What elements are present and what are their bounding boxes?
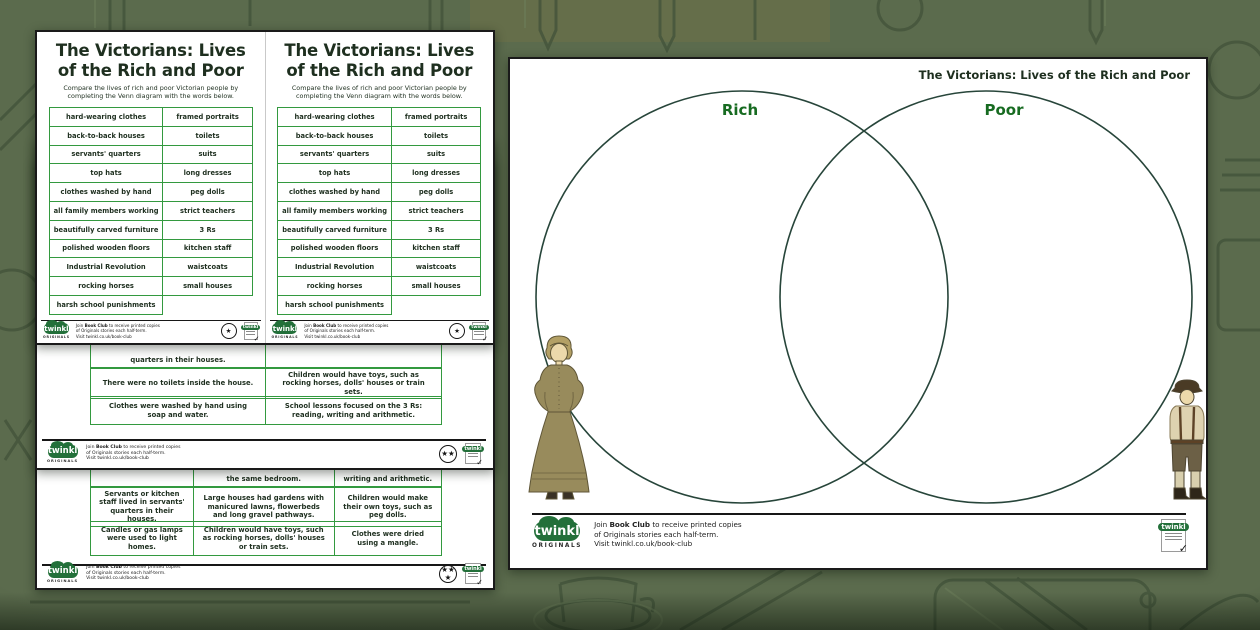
originals-label: ORIGINALS <box>47 459 78 463</box>
facts-cell: There were no toilets inside the house. <box>90 368 266 399</box>
word-bank-cell: harsh school punishments <box>49 295 164 315</box>
word-bank-row: harsh school punishments <box>49 295 253 315</box>
page-instructions: Compare the lives of rich and poor Victo… <box>61 84 241 100</box>
word-bank-cell: rocking horses <box>49 276 164 296</box>
facts-cell: Children would have toys, such as rockin… <box>265 368 442 399</box>
difficulty-two-stars-icon: ★★ <box>439 445 457 463</box>
twinkl-originals-logo: twinkl ORIGINALS <box>47 565 78 583</box>
venn-diagram-page: The Victorians: Lives of the Rich and Po… <box>508 57 1208 570</box>
word-bank-row: rocking horses small houses <box>277 276 481 296</box>
book-club-text: Join Book Club to receive printed copies… <box>86 445 180 462</box>
twinkl-resource-preview: the same bedroom. writing and arithmetic… <box>0 0 1260 630</box>
book-club-line: Visit twinkl.co.uk/book-club <box>304 334 388 339</box>
word-bank-cell: Industrial Revolution <box>277 257 392 277</box>
footer-divider <box>42 439 486 441</box>
book-club-line: Visit twinkl.co.uk/book-club <box>86 576 180 582</box>
word-bank-row: back-to-back houses toilets <box>49 126 253 146</box>
book-club-line: Visit twinkl.co.uk/book-club <box>594 539 742 549</box>
word-bank-row: all family members working strict teache… <box>49 201 253 221</box>
page-footer: twinkl ORIGINALS Join Book Club to recei… <box>272 322 487 340</box>
word-bank-cell: Industrial Revolution <box>49 257 164 277</box>
quality-badge-text-lines <box>468 573 479 578</box>
word-bank-row: Industrial Revolution waistcoats <box>277 257 481 277</box>
book-club-line: of Originals stories each half-term. <box>594 530 742 540</box>
page-footer: twinkl ORIGINALS Join Book Club to recei… <box>47 563 481 584</box>
facts-rows: There were no toilets inside the house. … <box>90 368 442 425</box>
facts-cell: Children would have toys, such as rockin… <box>193 521 335 556</box>
venn-label-rich: Rich <box>714 101 766 119</box>
word-bank-cell: back-to-back houses <box>277 126 392 146</box>
word-bank-cell: waistcoats <box>391 257 481 277</box>
originals-label: ORIGINALS <box>43 335 70 339</box>
quality-badge-icon: twinkl <box>465 563 481 584</box>
twinkl-originals-logo: twinkl ORIGINALS <box>532 519 582 549</box>
word-bank-cell: back-to-back houses <box>49 126 164 146</box>
word-bank-cell: strict teachers <box>162 201 252 221</box>
word-bank-cell: all family members working <box>49 201 164 221</box>
word-bank-cell: toilets <box>391 126 481 146</box>
book-club-line: Join Book Club to receive printed copies <box>86 565 180 571</box>
victorian-boy-illustration <box>1160 378 1215 508</box>
word-bank-page-2: The Victorians: Lives of the Rich and Po… <box>265 32 494 343</box>
facts-cell: School lessons focused on the 3 Rs: read… <box>265 396 442 425</box>
word-bank-pages: The Victorians: Lives of the Rich and Po… <box>35 30 495 345</box>
word-bank-row: top hats long dresses <box>49 163 253 183</box>
twinkl-logo-icon: twinkl <box>272 323 297 334</box>
difficulty-three-stars-icon: ★★★ <box>439 565 457 583</box>
word-bank-cell: small houses <box>162 276 252 296</box>
word-bank-row: beautifully carved furniture 3 Rs <box>49 220 253 240</box>
word-bank-cell <box>162 295 252 315</box>
word-bank-cell: waistcoats <box>162 257 252 277</box>
quality-badge-text-lines <box>468 453 479 458</box>
word-bank-row: rocking horses small houses <box>49 276 253 296</box>
facts-rows: Servants or kitchen staff lived in serva… <box>90 487 442 556</box>
quality-badge-text-lines <box>474 331 483 335</box>
word-bank-cell: hard-wearing clothes <box>49 107 164 127</box>
word-bank-row: all family members working strict teache… <box>277 201 481 221</box>
word-bank-cell: top hats <box>277 163 392 183</box>
footer-divider <box>270 320 490 322</box>
book-club-text: Join Book Club to receive printed copies… <box>76 323 160 338</box>
word-bank-row: clothes washed by hand peg dolls <box>277 182 481 202</box>
book-club-line: Visit twinkl.co.uk/book-club <box>86 456 180 462</box>
word-bank-cell: top hats <box>49 163 164 183</box>
quality-badge-text-lines <box>1165 533 1183 541</box>
word-bank-row: servants' quarters suits <box>49 145 253 165</box>
quality-badge-icon: twinkl <box>1161 519 1186 552</box>
facts-cell: Clothes were dried using a mangle. <box>334 521 442 556</box>
word-bank-cell: clothes washed by hand <box>49 182 164 202</box>
facts-cell: Clothes were washed by hand using soap a… <box>90 396 266 425</box>
word-bank-cell: hard-wearing clothes <box>277 107 392 127</box>
word-bank-row: hard-wearing clothes framed portraits <box>277 107 481 127</box>
word-bank-cell: strict teachers <box>391 201 481 221</box>
word-bank-cell: long dresses <box>162 163 252 183</box>
quality-badge-icon: twinkl <box>465 443 481 464</box>
word-bank-row: hard-wearing clothes framed portraits <box>49 107 253 127</box>
word-bank-row: polished wooden floors kitchen staff <box>277 239 481 259</box>
facts-row: Clothes were washed by hand using soap a… <box>90 396 442 425</box>
book-club-text: Join Book Club to receive printed copies… <box>86 565 180 582</box>
word-bank-cell: framed portraits <box>162 107 252 127</box>
word-bank-cell: clothes washed by hand <box>277 182 392 202</box>
book-club-line: Join Book Club to receive printed copies <box>594 520 742 530</box>
book-club-line: Join Book Club to receive printed copies <box>86 445 180 451</box>
word-bank-row: servants' quarters suits <box>277 145 481 165</box>
word-bank-table: hard-wearing clothes framed portraits ba… <box>277 107 481 315</box>
twinkl-logo-icon: twinkl <box>534 521 580 541</box>
quality-badge-text-lines <box>246 331 255 335</box>
page-title: The Victorians: Lives of the Rich and Po… <box>279 41 479 81</box>
page-footer: twinkl ORIGINALS Join Book Club to recei… <box>43 322 258 340</box>
word-bank-cell <box>391 295 481 315</box>
word-bank-cell: harsh school punishments <box>277 295 392 315</box>
word-bank-page-1: The Victorians: Lives of the Rich and Po… <box>37 32 265 343</box>
word-bank-cell: kitchen staff <box>162 239 252 259</box>
book-club-text: Join Book Club to receive printed copies… <box>304 323 388 338</box>
word-bank-row: Industrial Revolution waistcoats <box>49 257 253 277</box>
page-footer: twinkl ORIGINALS Join Book Club to recei… <box>532 519 1186 561</box>
word-bank-row: back-to-back houses toilets <box>277 126 481 146</box>
word-bank-cell: peg dolls <box>162 182 252 202</box>
word-bank-cell: long dresses <box>391 163 481 183</box>
word-bank-cell: small houses <box>391 276 481 296</box>
venn-circles <box>510 59 1210 572</box>
word-bank-cell: servants' quarters <box>49 145 164 165</box>
difficulty-one-star-icon: ★ <box>221 323 237 339</box>
word-bank-cell: 3 Rs <box>162 220 252 240</box>
word-bank-cell: polished wooden floors <box>49 239 164 259</box>
facts-row: Candles or gas lamps were used to light … <box>90 521 442 556</box>
footer-divider <box>532 513 1186 515</box>
originals-label: ORIGINALS <box>47 579 78 583</box>
word-bank-table: hard-wearing clothes framed portraits ba… <box>49 107 253 315</box>
quality-badge-icon: twinkl <box>472 322 486 340</box>
word-bank-cell: polished wooden floors <box>277 239 392 259</box>
word-bank-cell: servants' quarters <box>277 145 392 165</box>
word-bank-cell: beautifully carved furniture <box>49 220 164 240</box>
footer-divider <box>41 320 261 322</box>
word-bank-cell: 3 Rs <box>391 220 481 240</box>
word-bank-cell: suits <box>391 145 481 165</box>
twinkl-logo-icon: twinkl <box>48 565 78 578</box>
word-bank-cell: rocking horses <box>277 276 392 296</box>
twinkl-logo-icon: twinkl <box>48 445 78 458</box>
venn-label-poor: Poor <box>976 101 1032 119</box>
facts-cell: Candles or gas lamps were used to light … <box>90 521 194 556</box>
word-bank-cell: framed portraits <box>391 107 481 127</box>
word-bank-cell: beautifully carved furniture <box>277 220 392 240</box>
page-instructions: Compare the lives of rich and poor Victo… <box>289 84 469 100</box>
word-bank-cell: suits <box>162 145 252 165</box>
twinkl-originals-logo: twinkl ORIGINALS <box>47 445 78 463</box>
word-bank-cell: toilets <box>162 126 252 146</box>
word-bank-row: clothes washed by hand peg dolls <box>49 182 253 202</box>
twinkl-originals-logo: twinkl ORIGINALS <box>272 323 299 339</box>
word-bank-row: beautifully carved furniture 3 Rs <box>277 220 481 240</box>
facts-row: Servants or kitchen staff lived in serva… <box>90 487 442 522</box>
word-bank-cell: peg dolls <box>391 182 481 202</box>
word-bank-cell: kitchen staff <box>391 239 481 259</box>
word-bank-row: harsh school punishments <box>277 295 481 315</box>
word-bank-cell: all family members working <box>277 201 392 221</box>
page-title: The Victorians: Lives of the Rich and Po… <box>51 41 251 81</box>
word-bank-row: polished wooden floors kitchen staff <box>49 239 253 259</box>
originals-label: ORIGINALS <box>532 543 582 549</box>
originals-label: ORIGINALS <box>272 335 299 339</box>
book-club-line: Visit twinkl.co.uk/book-club <box>76 334 160 339</box>
victorian-woman-illustration <box>518 332 601 505</box>
quality-badge-icon: twinkl <box>244 322 258 340</box>
word-bank-row: top hats long dresses <box>277 163 481 183</box>
difficulty-one-star-icon: ★ <box>449 323 465 339</box>
page-footer: twinkl ORIGINALS Join Book Club to recei… <box>47 443 481 464</box>
book-club-text: Join Book Club to receive printed copies… <box>594 520 742 549</box>
twinkl-logo-icon: twinkl <box>44 323 69 334</box>
twinkl-originals-logo: twinkl ORIGINALS <box>43 323 70 339</box>
facts-row: There were no toilets inside the house. … <box>90 368 442 397</box>
